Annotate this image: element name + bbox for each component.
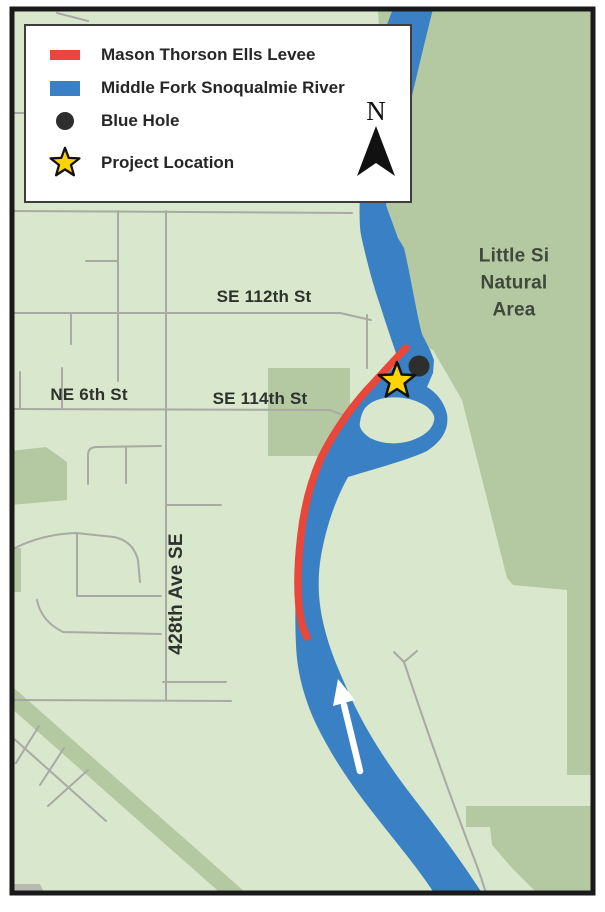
blue-hole-marker <box>409 356 430 377</box>
street-label-ne-6th: NE 6th St <box>50 385 127 405</box>
blue-hole-dot-icon <box>44 111 86 131</box>
legend-item-label: Blue Hole <box>101 111 179 131</box>
natural-area-label: Little Si Natural Area <box>479 243 549 324</box>
north-arrow: N <box>352 96 400 183</box>
street-label-se-114th: SE 114th St <box>213 389 308 409</box>
map-page: SE 112th St NE 6th St SE 114th St 428th … <box>0 0 605 912</box>
legend-item-label: Middle Fork Snoqualmie River <box>101 78 345 98</box>
natural-area-label-line3: Area <box>479 297 549 324</box>
legend-item-river: Middle Fork Snoqualmie River <box>44 78 410 98</box>
street-label-428th-ave: 428th Ave SE <box>166 533 188 654</box>
river-swatch-icon <box>44 80 86 97</box>
natural-area-label-line2: Natural <box>479 270 549 297</box>
natural-area-label-line1: Little Si <box>479 243 549 270</box>
legend-item-label: Mason Thorson Ells Levee <box>101 45 315 65</box>
legend-item-label: Project Location <box>101 153 234 173</box>
project-star-icon <box>44 144 86 182</box>
levee-line-swatch-icon <box>44 49 86 61</box>
north-label: N <box>352 96 400 126</box>
north-arrow-icon <box>357 126 395 178</box>
street-label-se-112th: SE 112th St <box>217 287 312 307</box>
legend-item-levee: Mason Thorson Ells Levee <box>44 45 410 65</box>
